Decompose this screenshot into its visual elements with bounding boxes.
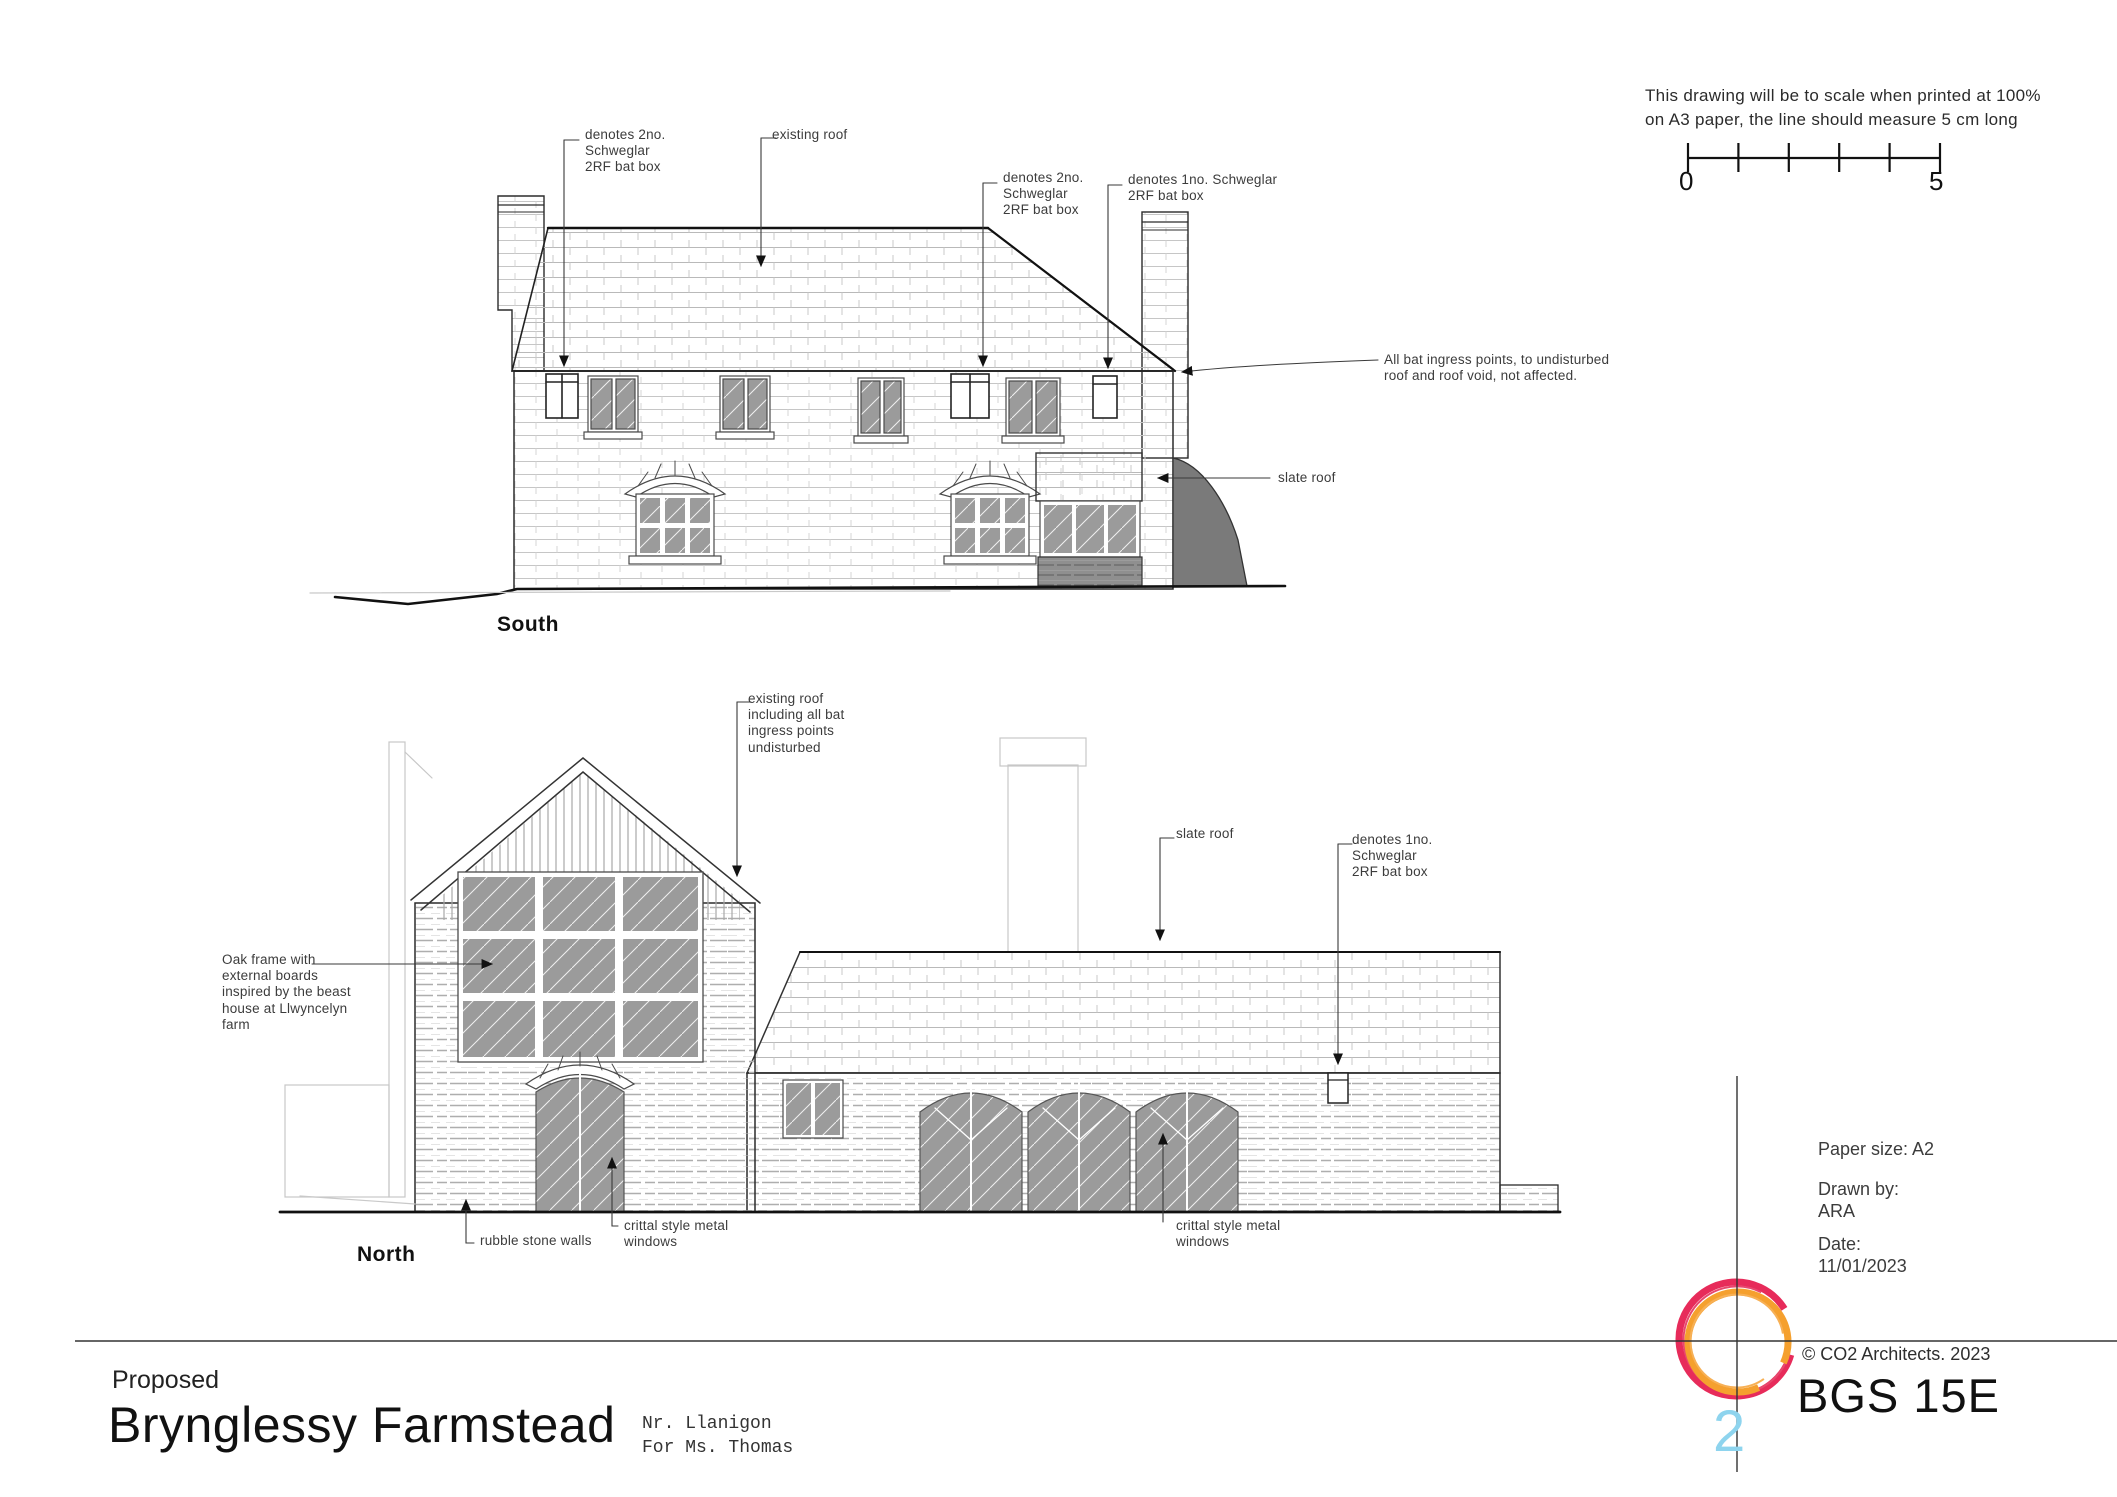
south-elevation-drawing bbox=[310, 138, 1378, 604]
north-elevation-label: North bbox=[357, 1243, 416, 1267]
drawing-sheet: This drawing will be to scale when print… bbox=[0, 0, 2117, 1497]
north-arched-doorway bbox=[526, 1052, 634, 1212]
north-bat-box bbox=[1328, 1073, 1348, 1103]
project-location: Nr. Llanigon bbox=[642, 1414, 772, 1434]
north-ann-oak-frame: Oak frame with external boards inspired … bbox=[222, 952, 351, 1033]
north-oak-frame-window bbox=[458, 872, 703, 1062]
south-bay bbox=[1036, 453, 1142, 586]
date-label: Date: bbox=[1818, 1233, 1861, 1256]
south-elevation-label: South bbox=[497, 613, 559, 637]
north-ann-batbox-1no: denotes 1no. Schweglar 2RF bat box bbox=[1352, 832, 1432, 881]
scale-note-line2: on A3 paper, the line should measure 5 c… bbox=[1645, 110, 2018, 130]
paper-size: Paper size: A2 bbox=[1818, 1138, 1934, 1161]
south-garden-wall bbox=[1173, 458, 1247, 586]
north-ann-slate-roof: slate roof bbox=[1176, 826, 1234, 842]
north-arched-windows bbox=[920, 1080, 1238, 1212]
scale-start-label: 0 bbox=[1679, 166, 1693, 197]
north-elevation-drawing bbox=[280, 702, 1560, 1243]
south-ann-batbox-2no-left: denotes 2no. Schweglar 2RF bat box bbox=[585, 127, 665, 176]
logo-number-2: 2 bbox=[1713, 1398, 1745, 1465]
drawn-by-label: Drawn by: bbox=[1818, 1178, 1899, 1201]
scale-end-label: 5 bbox=[1929, 166, 1943, 197]
south-roof bbox=[512, 228, 1173, 371]
project-client: For Ms. Thomas bbox=[642, 1438, 793, 1458]
north-ann-crittal-right: crittal style metal windows bbox=[1176, 1218, 1280, 1250]
copyright-notice: © CO2 Architects. 2023 bbox=[1802, 1344, 1990, 1365]
co2-architects-logo bbox=[1667, 1271, 1808, 1412]
north-small-window bbox=[783, 1080, 843, 1138]
south-ann-existing-roof: existing roof bbox=[772, 127, 847, 143]
scale-note-line1: This drawing will be to scale when print… bbox=[1645, 86, 2041, 106]
scale-bar bbox=[1688, 143, 1940, 172]
elevation-linework bbox=[0, 0, 2117, 1497]
north-ann-rubble: rubble stone walls bbox=[480, 1233, 592, 1249]
north-ann-crittal-left: crittal style metal windows bbox=[624, 1218, 728, 1250]
project-name: Brynglessy Farmstead bbox=[108, 1396, 615, 1454]
south-ann-batbox-1no: denotes 1no. Schweglar 2RF bat box bbox=[1128, 172, 1277, 204]
north-ann-existing-roof: existing roof including all bat ingress … bbox=[748, 691, 844, 756]
south-ann-ingress: All bat ingress points, to undisturbed r… bbox=[1384, 352, 1609, 384]
south-ann-batbox-2no-right: denotes 2no. Schweglar 2RF bat box bbox=[1003, 170, 1083, 219]
project-status: Proposed bbox=[112, 1366, 219, 1395]
date-value: 11/01/2023 bbox=[1818, 1255, 1907, 1278]
south-ann-slate-roof: slate roof bbox=[1278, 470, 1336, 486]
drawn-by-value: ARA bbox=[1818, 1200, 1855, 1223]
drawing-number: BGS 15E bbox=[1797, 1368, 2000, 1423]
north-wing-roof bbox=[747, 952, 1500, 1073]
